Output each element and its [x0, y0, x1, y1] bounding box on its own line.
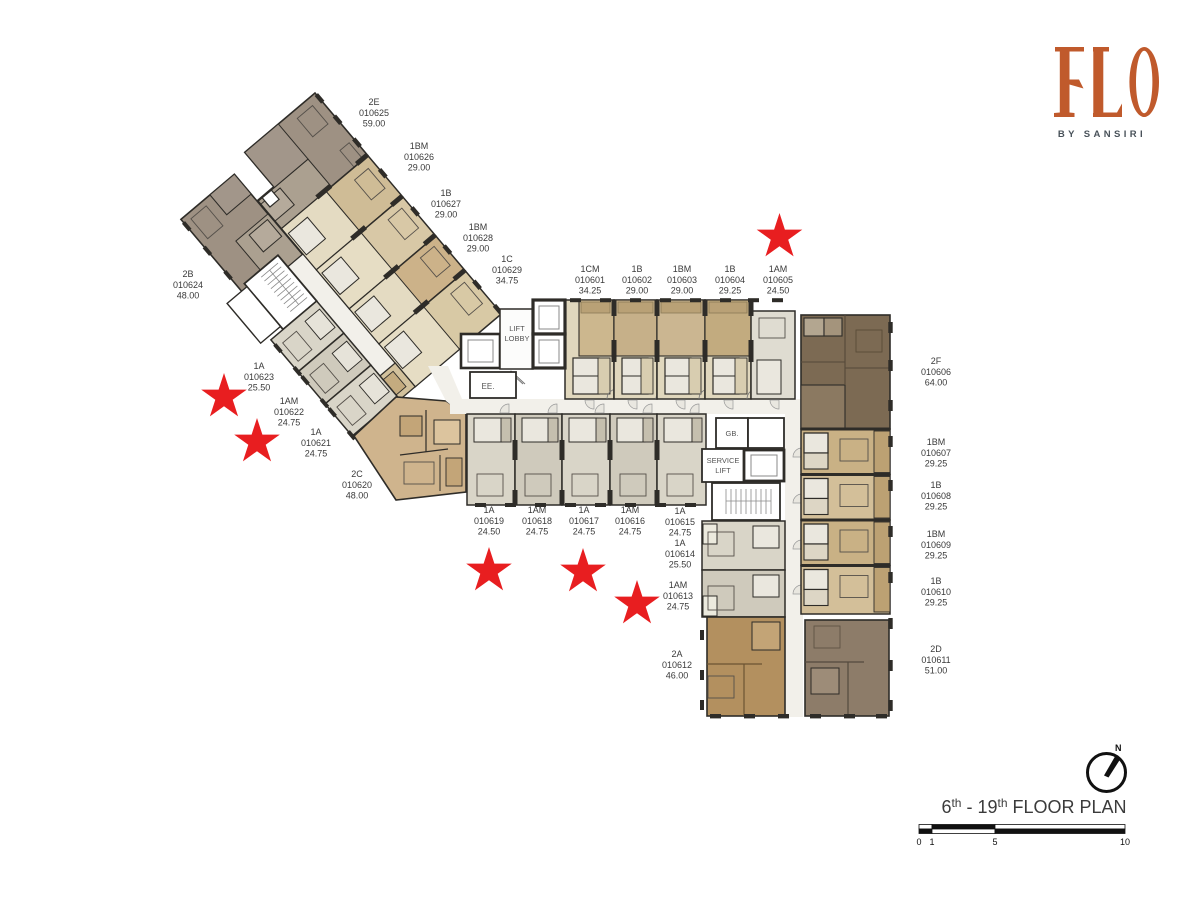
svg-text:6th - 19th FLOOR PLAN: 6th - 19th FLOOR PLAN: [941, 796, 1126, 817]
svg-text:5: 5: [992, 837, 997, 847]
svg-text:LIFT: LIFT: [715, 466, 731, 475]
svg-text:0: 0: [916, 837, 921, 847]
svg-text:LIFT: LIFT: [509, 324, 525, 333]
svg-text:SERVICE: SERVICE: [707, 456, 740, 465]
svg-text:BY SANSIRI: BY SANSIRI: [1058, 129, 1146, 140]
svg-text:1: 1: [929, 837, 934, 847]
svg-text:LOBBY: LOBBY: [504, 334, 529, 343]
svg-text:10: 10: [1120, 837, 1130, 847]
svg-text:GB.: GB.: [726, 429, 739, 438]
svg-text:N: N: [1115, 743, 1122, 753]
svg-text:EE.: EE.: [482, 382, 495, 391]
